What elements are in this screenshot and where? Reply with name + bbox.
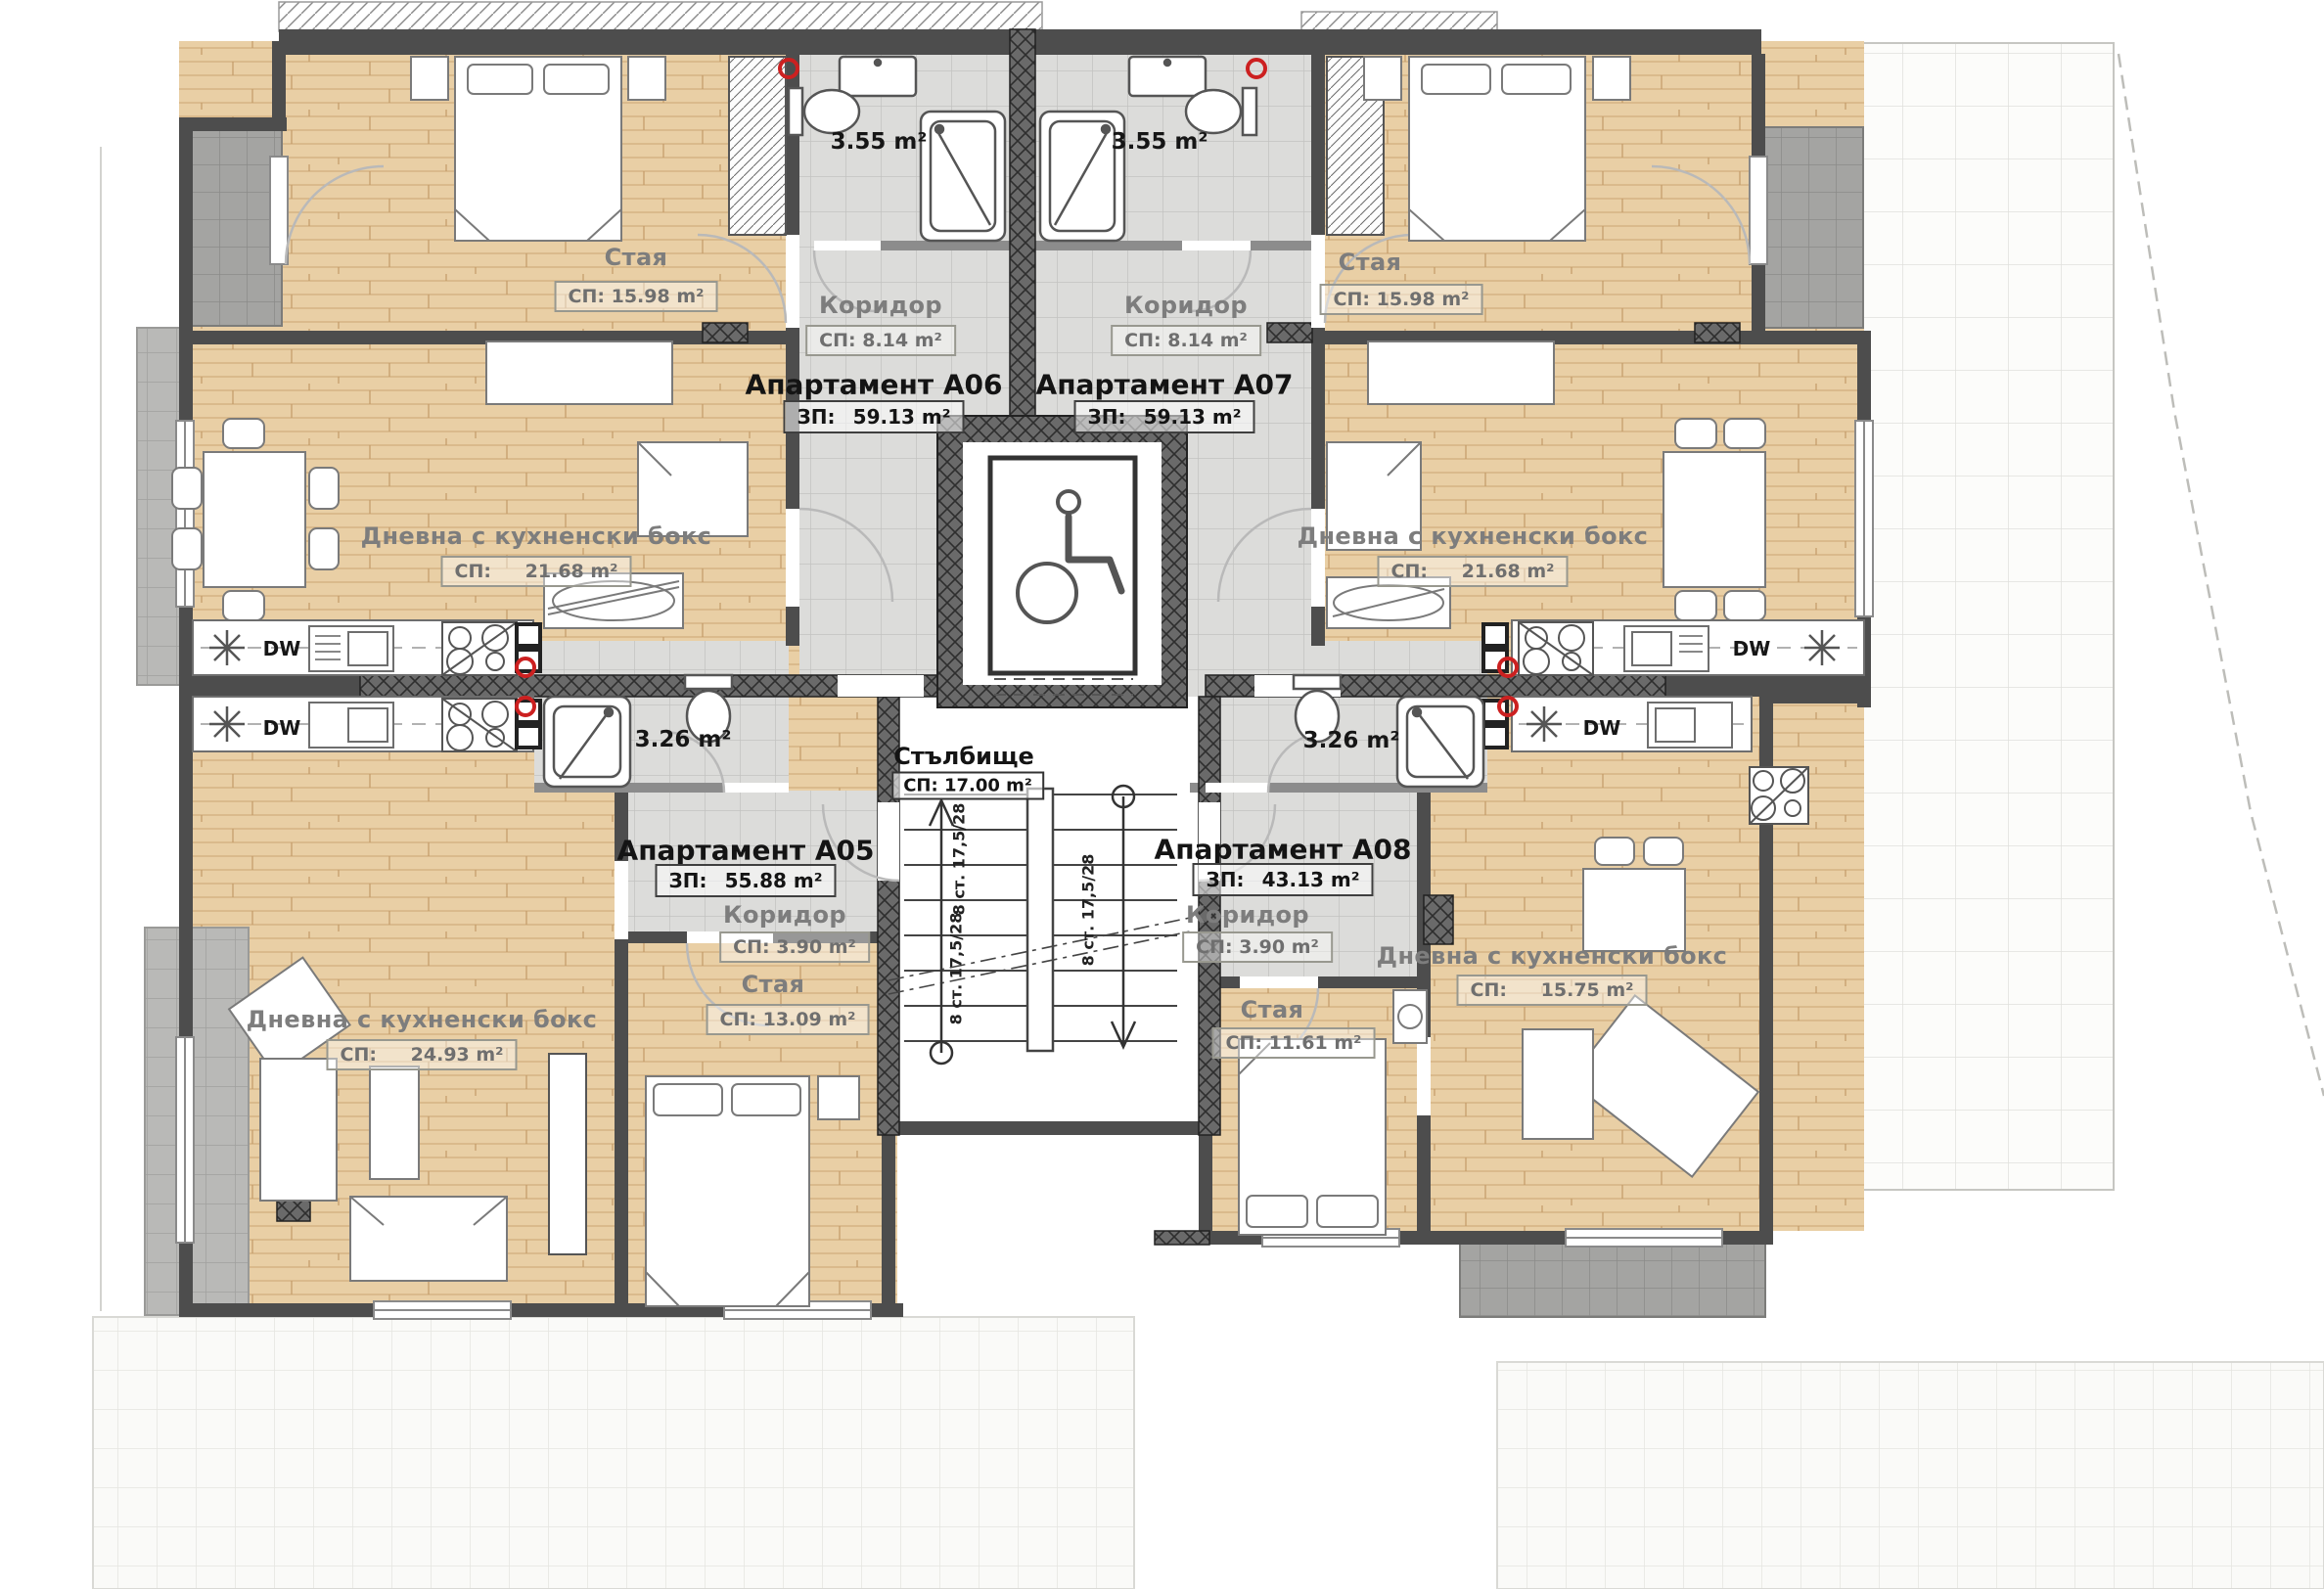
floor-plan-drawing [0,0,2324,1589]
elevator [937,416,1187,707]
corridor-a05-area: СП: 3.90 m² [719,931,870,963]
stair-flight-label-1: 8 ст. 17,5/28 [950,803,969,916]
bedroom-a07-name: Стая [1339,249,1402,276]
living-a05-area: 24.93 m² [411,1044,504,1066]
floor-plan: Стая СП: 15.98 m² Стая СП: 15.98 m² 3.55… [0,0,2324,1589]
living-a05-name: Дневна с кухненски бокс [247,1006,598,1033]
bath-a08-area: 3.26 m² [1303,728,1400,753]
living-a05-area-box: СП: 24.93 m² [327,1039,518,1070]
apartment-a06-area: 59.13 m² [853,405,951,429]
apartment-a07-area-label: ЗП: [1088,405,1126,429]
living-a06-area-label: СП: [455,561,491,582]
corridor-a08-area: СП: 3.90 m² [1182,931,1333,963]
living-a06-area-box: СП: 21.68 m² [441,556,632,587]
apartment-a08-area-label: ЗП: [1207,868,1245,891]
dishwasher-label-1: DW [263,637,301,660]
bedroom-a05-area: СП: 13.09 m² [706,1004,870,1035]
stair-flight-label-2: 8 ст. 17,5/28 [947,913,966,1025]
bedroom-a07-area: СП: 15.98 m² [1320,284,1483,315]
living-a07-area-box: СП: 21.68 m² [1378,556,1569,587]
living-a06-name: Дневна с кухненски бокс [361,522,712,550]
apartment-a08-area: 43.13 m² [1262,868,1360,891]
living-a08-name: Дневна с кухненски бокс [1377,942,1728,970]
dishwasher-label-3: DW [1733,637,1771,660]
corridor-a06-area: СП: 8.14 m² [805,325,956,356]
apartment-a06-area-box: ЗП: 59.13 m² [784,400,965,433]
dishwasher-label-4: DW [1583,716,1621,740]
bath-a07-area: 3.55 m² [1112,129,1208,155]
apartment-a08-title: Апартамент А08 [1155,834,1412,866]
living-a05-area-label: СП: [341,1044,377,1066]
property-boundary-line [2119,54,2324,1096]
apartment-a06-title: Апартамент А06 [746,369,1003,401]
living-a08-area-label: СП: [1471,979,1507,1001]
living-a06-area: 21.68 m² [525,561,618,582]
bedroom-a08-name: Стая [1241,996,1304,1023]
bedroom-a06-area: СП: 15.98 m² [555,281,718,312]
stairwell-name: Стълбище [893,743,1034,770]
living-a08-area: 15.75 m² [1541,979,1634,1001]
apartment-a05-area-label: ЗП: [669,869,707,892]
dishwasher-label-2: DW [263,716,301,740]
apartment-a05-area-box: ЗП: 55.88 m² [656,864,837,897]
corridor-a07-area: СП: 8.14 m² [1111,325,1261,356]
bedroom-a05-name: Стая [742,971,805,998]
living-a07-area: 21.68 m² [1462,561,1555,582]
corridor-a05-name: Коридор [723,901,846,929]
bedroom-a06-name: Стая [605,244,668,271]
corridor-a07-name: Коридор [1124,292,1248,319]
corridor-a08-name: Коридор [1186,901,1309,929]
living-a08-area-box: СП: 15.75 m² [1457,975,1648,1006]
living-a07-area-label: СП: [1391,561,1428,582]
apartment-a05-title: Апартамент А05 [617,835,875,867]
bath-a05-area: 3.26 m² [635,727,732,752]
apartment-a07-title: Апартамент А07 [1036,369,1294,401]
bath-a06-area: 3.55 m² [831,129,928,155]
apartment-a08-area-box: ЗП: 43.13 m² [1193,863,1374,896]
corridor-a06-name: Коридор [819,292,942,319]
stair-flight-label-3: 8 ст. 17,5/28 [1079,854,1098,967]
living-a07-name: Дневна с кухненски бокс [1298,522,1649,550]
apartment-a06-area-label: ЗП: [797,405,836,429]
apartment-a07-area-box: ЗП: 59.13 m² [1074,400,1255,433]
stairwell-area: СП: 17.00 m² [891,772,1044,800]
apartment-a07-area: 59.13 m² [1144,405,1242,429]
bedroom-a08-area: СП: 11.61 m² [1212,1027,1376,1059]
apartment-a05-area: 55.88 m² [725,869,823,892]
